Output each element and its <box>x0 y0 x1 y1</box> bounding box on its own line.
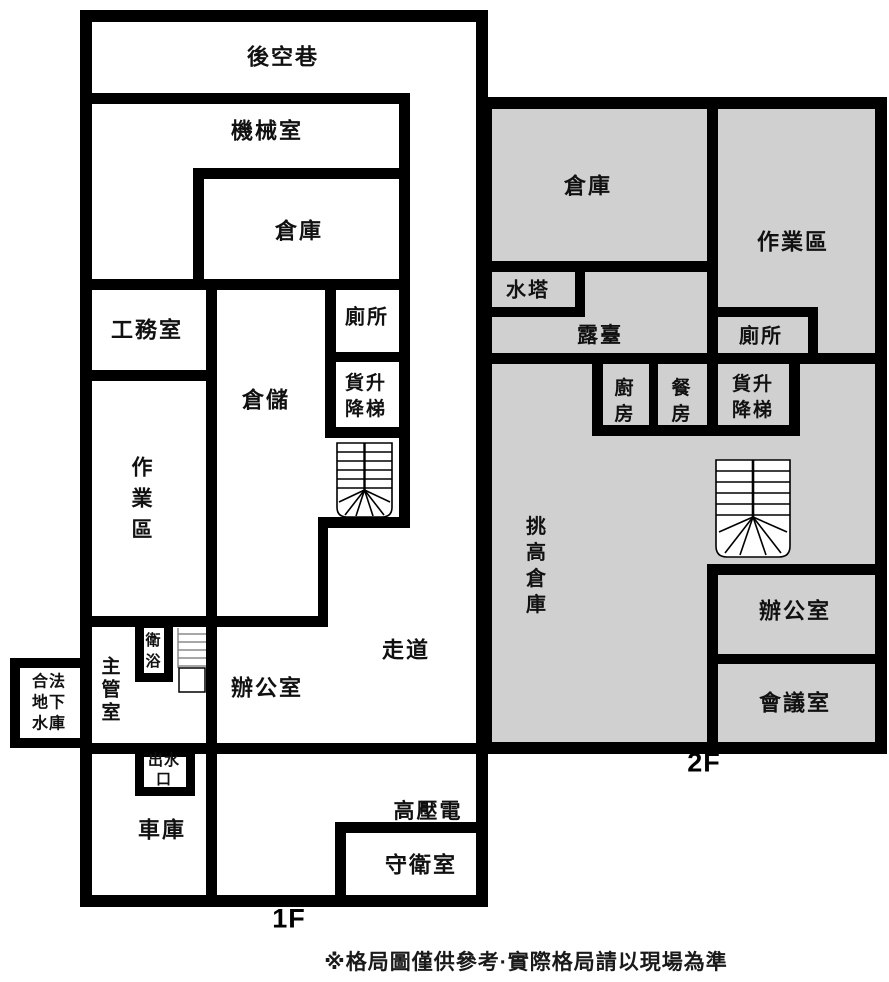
room-label-storage: 倉儲 <box>242 386 290 414</box>
room-label-toilet-1f: 廁所 <box>345 306 389 331</box>
room-label-work-area-1f: 作 業 區 <box>132 453 155 546</box>
room-label-underground-reservoir: 合法 地下 水庫 <box>32 672 66 735</box>
room-label-warehouse-2f: 倉庫 <box>564 172 612 200</box>
stairs-icon-bathroom <box>178 628 206 692</box>
room-label-kitchen: 廚 房 <box>614 376 635 428</box>
room-label-back-alley: 後空巷 <box>247 43 319 71</box>
floor1-label: 1F <box>272 904 306 935</box>
room-label-guard-room: 守衛室 <box>385 851 457 879</box>
room-label-water-outlet: 出水 口 <box>148 751 180 789</box>
room-label-bathroom: 衛 浴 <box>145 630 162 672</box>
floorplan-page: { "colors": { "wall": "#000000", "floor2… <box>0 0 889 982</box>
room-label-terrace: 露臺 <box>577 323 623 349</box>
room-label-freight-elevator-2f: 貨升 降梯 <box>732 372 774 424</box>
room-label-water-tower: 水塔 <box>506 279 550 304</box>
room-label-work-area-2f: 作業區 <box>757 228 829 256</box>
room-label-high-voltage: 高壓電 <box>394 799 463 825</box>
room-label-machine-room: 機械室 <box>231 117 303 145</box>
stairs-icon-2f <box>716 460 790 557</box>
room-label-garage: 車庫 <box>138 816 186 844</box>
disclaimer-text: ※格局圖僅供參考·實際格局請以現場為準 <box>324 946 727 976</box>
floorplan-canvas: 後空巷 機械室 倉庫 工務室 廁所 倉儲 貨升 降梯 作 業 區 衛 浴 主 管… <box>0 0 889 982</box>
room-label-dining-room: 餐 房 <box>671 376 692 428</box>
room-label-toilet-2f: 廁所 <box>739 325 783 350</box>
room-label-corridor: 走道 <box>382 636 430 664</box>
room-label-double-height-warehouse: 挑 高 倉 庫 <box>526 514 548 618</box>
room-label-engineering-office: 工務室 <box>111 316 183 344</box>
room-label-warehouse-1f: 倉庫 <box>275 217 323 245</box>
room-label-freight-elevator-1f: 貨升 降梯 <box>345 371 387 423</box>
stairs-icon-1f <box>337 443 392 517</box>
room-label-office-1f: 辦公室 <box>231 674 303 702</box>
floor2-label: 2F <box>687 748 721 779</box>
room-label-meeting-room: 會議室 <box>759 689 831 717</box>
room-label-supervisor-room: 主 管 室 <box>101 656 122 725</box>
room-label-office-2f: 辦公室 <box>759 597 831 625</box>
